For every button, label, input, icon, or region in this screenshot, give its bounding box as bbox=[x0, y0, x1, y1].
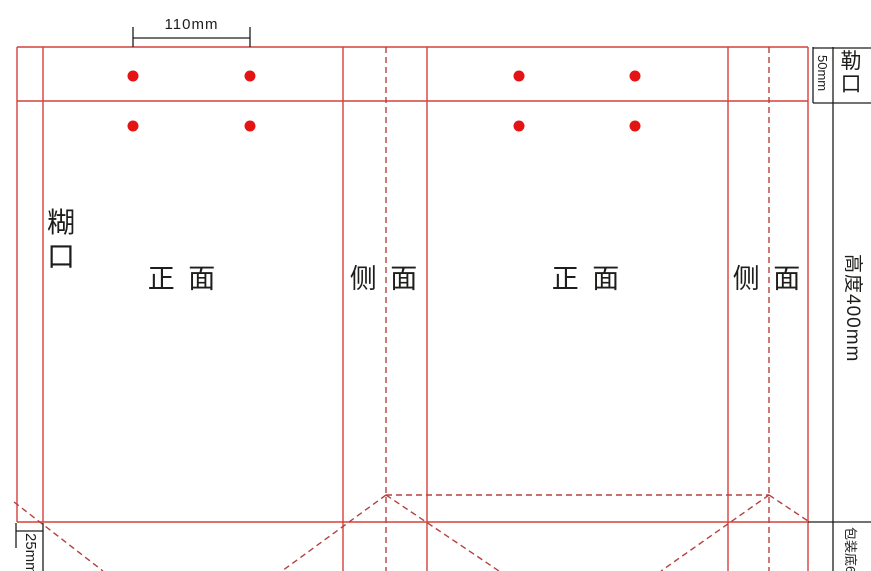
dimension-110mm-label: 110mm bbox=[133, 17, 250, 34]
side-panel-2-label: 侧 面 bbox=[723, 265, 813, 295]
apex2-left-diagonal-dashed bbox=[661, 495, 769, 571]
side-panel-1-label: 侧 面 bbox=[340, 265, 430, 295]
grommet-dot bbox=[514, 121, 525, 132]
glue-flap-label: 糊口 bbox=[46, 206, 76, 273]
dimension-50mm-label: 50mm bbox=[815, 55, 829, 91]
apex1-right-diagonal-dashed bbox=[386, 495, 499, 571]
dieline-canvas: 110mm 勒口 50mm 糊口 正 面 侧 面 正 面 侧 面 高度400mm… bbox=[0, 0, 871, 571]
grommet-dot bbox=[514, 71, 525, 82]
front-panel-2-label: 正 面 bbox=[542, 265, 632, 295]
dimension-25mm-label: 25mm bbox=[22, 533, 39, 571]
apex2-right-diagonal-dashed bbox=[769, 495, 808, 521]
lekou-flap-label: 勒口 bbox=[839, 50, 863, 96]
bag-bottom-label: 包装底65 bbox=[843, 527, 857, 571]
bag-height-label: 高度400mm bbox=[841, 254, 862, 362]
grommet-dot bbox=[245, 71, 256, 82]
grommet-dot bbox=[128, 121, 139, 132]
grommet-dot bbox=[128, 71, 139, 82]
grommet-dot bbox=[630, 121, 641, 132]
apex1-left-diagonal-dashed bbox=[282, 495, 386, 571]
front-panel-1-label: 正 面 bbox=[138, 265, 228, 295]
grommet-dot bbox=[630, 71, 641, 82]
grommet-dot bbox=[245, 121, 256, 132]
